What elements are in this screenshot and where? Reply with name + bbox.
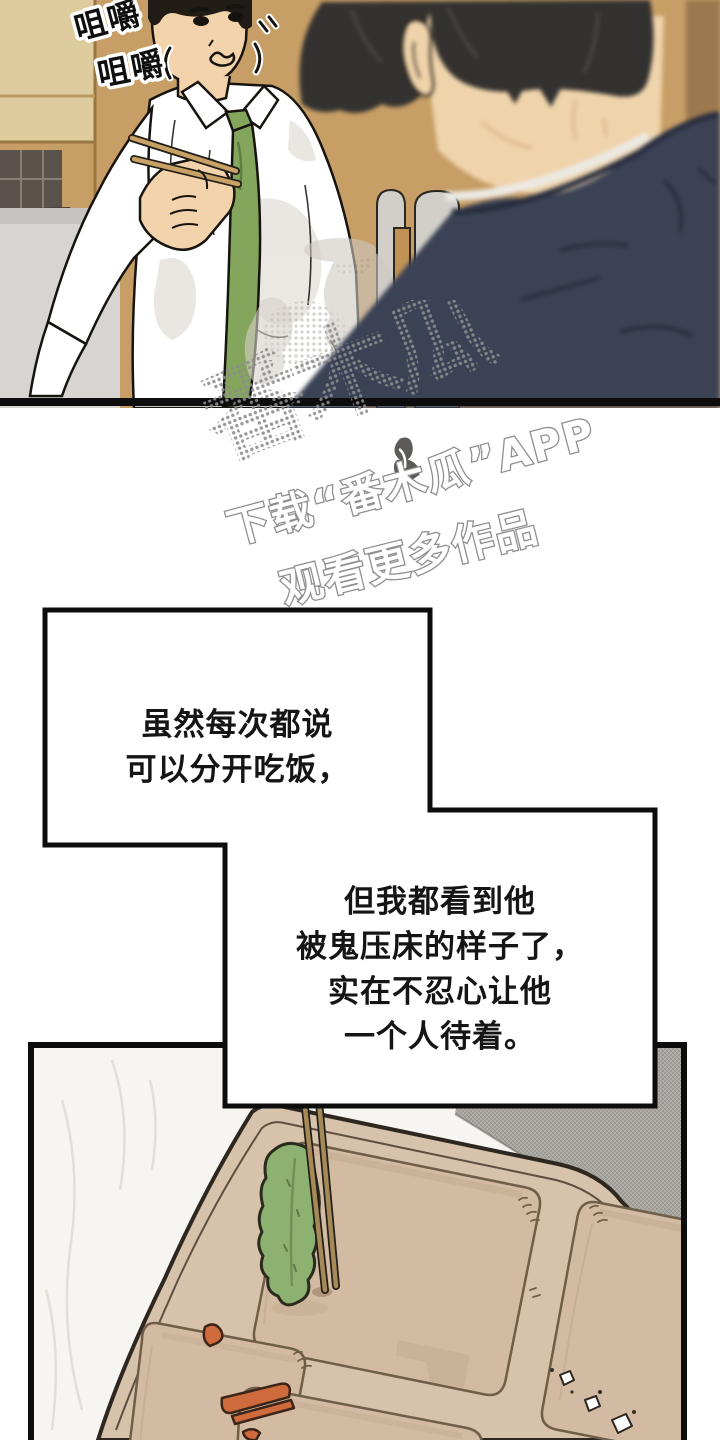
narration-text-1: 虽然每次都说 可以分开吃饭，: [45, 703, 430, 793]
left-eye: [193, 16, 209, 26]
watermark-tagline-1: 下载“番木瓜”APP: [222, 408, 601, 553]
chewing-mouth: [211, 53, 235, 66]
narration-line: 一个人待着。: [225, 1015, 655, 1060]
window-lattice: [0, 150, 62, 208]
narration-line: 可以分开吃饭，: [45, 748, 430, 793]
panel-1-border: [0, 398, 720, 406]
panel-2-artwork: [0, 1040, 720, 1440]
comic-page: 咀嚼 咀嚼: [0, 0, 720, 1440]
narration-line: 实在不忍心让他: [225, 970, 655, 1015]
narration-line: 被鬼压床的样子了，: [225, 925, 655, 970]
brush-icon: [389, 436, 421, 485]
watermark-tagline-2: 观看更多作品: [276, 502, 544, 613]
narration-line: 虽然每次都说: [45, 703, 430, 748]
narration-text-2: 但我都看到他 被鬼压床的样子了， 实在不忍心让他 一个人待着。: [225, 880, 655, 1060]
panel-1-artwork: 咀嚼 咀嚼: [0, 0, 720, 408]
right-eye: [228, 12, 244, 22]
narration-line: 但我都看到他: [225, 880, 655, 925]
